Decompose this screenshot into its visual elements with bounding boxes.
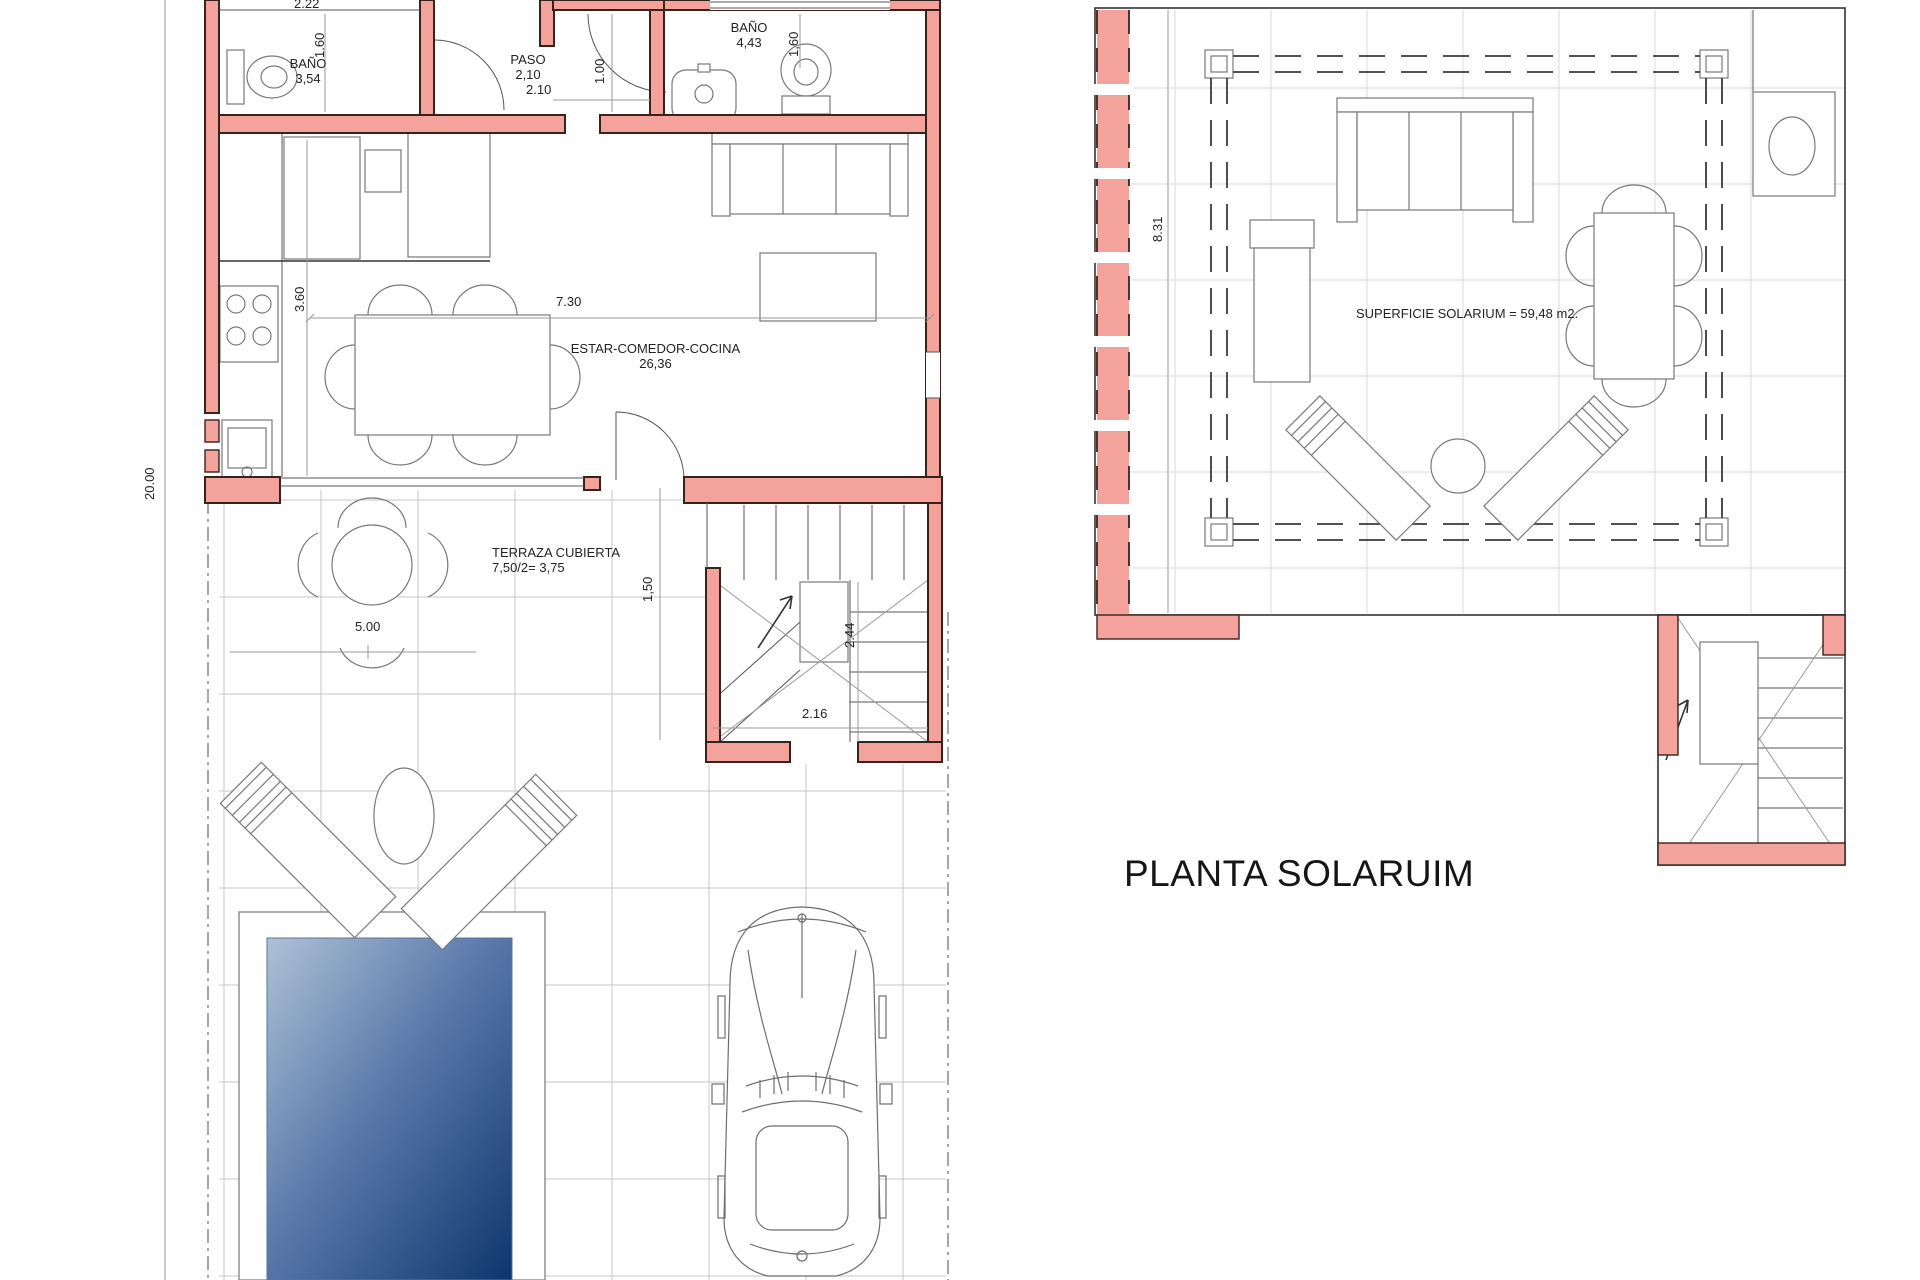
room-name: TERRAZA CUBIERTA — [492, 545, 620, 560]
car — [712, 907, 892, 1276]
room-name: ESTAR-COMEDOR-COCINA — [558, 341, 753, 356]
room-label-hall: PASO 2,10 — [494, 52, 562, 83]
dim-terrace-depth: 1,50 — [640, 577, 655, 602]
living-sofa — [712, 128, 908, 321]
room-area: 2,10 — [494, 67, 562, 82]
room-area: 7,50/2= 3,75 — [492, 560, 620, 575]
solarium-sofa — [1337, 98, 1533, 222]
floorplan-canvas: 2.22 1.60 BAÑO 3,54 PASO 2,10 2.10 1.00 … — [0, 0, 1920, 1280]
solarium-basin — [1753, 10, 1835, 196]
room-name: BAÑO — [713, 20, 785, 35]
dim-terrace-width: 5.00 — [355, 619, 380, 634]
room-area: 4,43 — [713, 35, 785, 50]
room-label-bath1: BAÑO 3,54 — [272, 56, 344, 87]
solarium-plan — [1093, 8, 1845, 865]
kitchen-sink — [222, 420, 272, 482]
dining-table-set — [325, 285, 580, 465]
ground-floor-plan — [165, 0, 948, 1280]
solarium-surface-label: SUPERFICIE SOLARIUM = 59,48 m2. — [1356, 306, 1578, 321]
stove — [220, 286, 278, 362]
solarium-bar-unit — [1250, 220, 1314, 382]
dim-hall-width: 2.10 — [526, 82, 551, 97]
solarium-stair-tower — [1658, 615, 1845, 865]
dim-kitchen-depth: 3.60 — [292, 287, 307, 312]
swimming-pool — [239, 912, 545, 1280]
dim-plot-length: 20.00 — [142, 467, 157, 500]
dim-bath2-depth: 1,60 — [786, 32, 801, 57]
dim-living-width: 7.30 — [556, 294, 581, 309]
dim-stairs-width: 2.16 — [802, 706, 827, 721]
garden-side-table — [374, 768, 434, 864]
coffee-table — [760, 253, 876, 321]
dim-solarium-depth: 8.31 — [1150, 217, 1165, 242]
room-area: 26,36 — [558, 356, 753, 371]
floorplan-drawing — [0, 0, 1920, 1280]
dim-stairs-depth: 2.44 — [842, 623, 857, 648]
room-name: PASO — [494, 52, 562, 67]
room-label-bath2: BAÑO 4,43 — [713, 20, 785, 51]
dim-bath1-depth: 1.60 — [312, 33, 327, 58]
room-area: 3,54 — [272, 71, 344, 86]
room-name: BAÑO — [272, 56, 344, 71]
solarium-lounge-chairs — [1286, 396, 1628, 540]
solarium-dining-set — [1566, 185, 1702, 407]
dim-bath1-width: 2.22 — [294, 0, 319, 11]
bath2-fixtures — [672, 44, 831, 122]
room-label-terrace: TERRAZA CUBIERTA 7,50/2= 3,75 — [492, 545, 620, 576]
room-label-living: ESTAR-COMEDOR-COCINA 26,36 — [558, 341, 753, 372]
dim-hall-depth: 1.00 — [592, 59, 607, 84]
solarium-plan-title: PLANTA SOLARUIM — [1124, 852, 1474, 896]
